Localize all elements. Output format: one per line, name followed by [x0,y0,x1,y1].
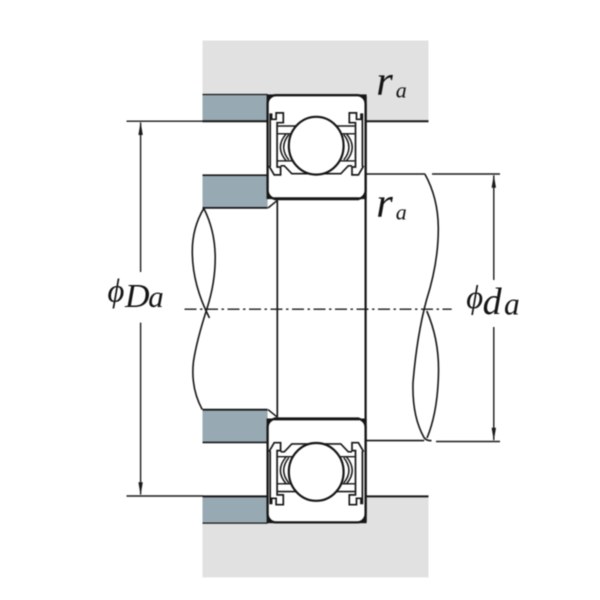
svg-text:d: d [483,281,503,323]
svg-text:r: r [376,180,393,227]
svg-text:a: a [504,287,520,322]
svg-text:a: a [148,279,164,314]
svg-text:a: a [396,78,407,103]
svg-text:r: r [376,58,393,105]
svg-text:ϕ: ϕ [108,273,125,309]
svg-text:D: D [124,278,150,315]
svg-text:ϕ: ϕ [466,280,483,316]
svg-text:a: a [396,199,407,224]
